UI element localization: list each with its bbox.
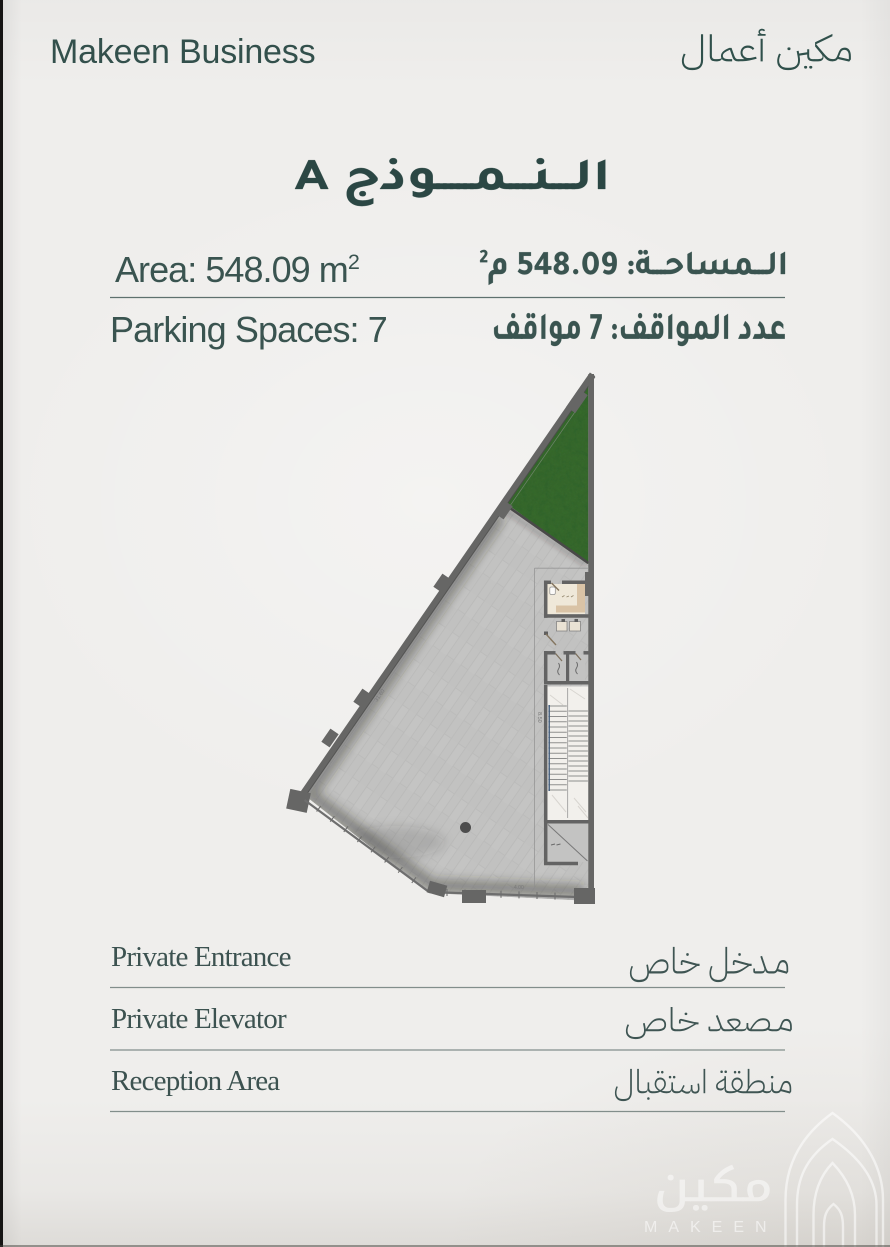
svg-text:8.50: 8.50 [536,712,542,723]
svg-text:4.00: 4.00 [514,885,524,891]
